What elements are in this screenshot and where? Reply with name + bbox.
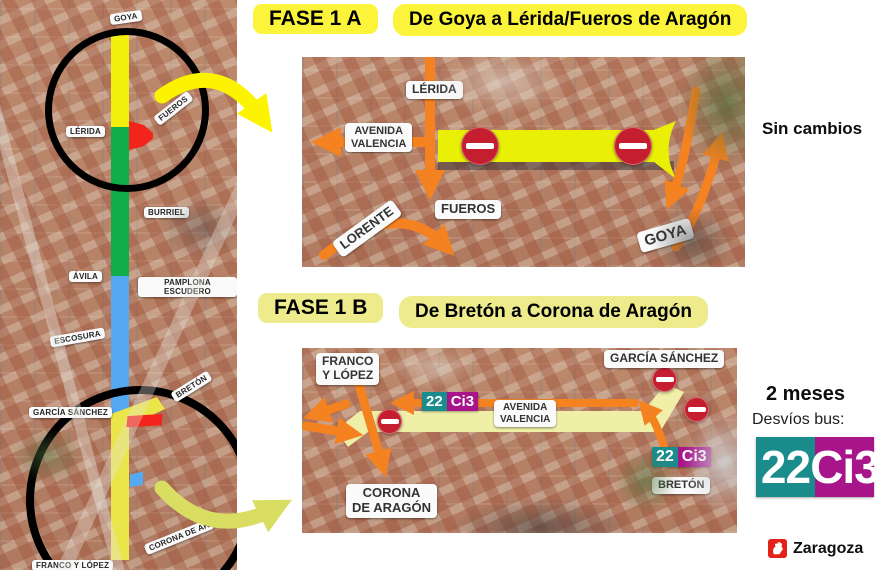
zaragoza-lion-icon	[768, 539, 787, 558]
no-entry-icon	[614, 127, 652, 165]
no-entry-icon	[652, 367, 677, 392]
phase-b-duration: 2 meses	[766, 383, 845, 406]
no-entry-icon	[461, 127, 499, 165]
street-label-avila: ÁVILA	[69, 271, 102, 282]
phase-a-note: Sin cambios	[762, 119, 862, 139]
map-label-lerida: LÉRIDA	[406, 81, 463, 99]
bus-line-ci3: Ci3	[815, 437, 874, 497]
city-name: Zaragoza	[793, 540, 863, 558]
map-label-garcia-sanchez: GARCÍA SÁNCHEZ	[604, 350, 724, 368]
map-label-breton: BRETÓN	[652, 477, 710, 494]
street-label-garcia-sanchez: GARCÍA SÁNCHEZ	[29, 407, 112, 418]
phase-b-badge: FASE 1 B	[258, 293, 383, 323]
detour-arrow-breton-curve	[646, 409, 668, 460]
map-label-goya: GOYA	[636, 218, 695, 254]
city-logo: Zaragoza	[768, 539, 863, 558]
map-label-avenida-valencia: AVENIDA VALENCIA	[494, 400, 556, 427]
phase-b-map: 22 Ci3 22 Ci3 FRANCO Y LÓPEZ GARCÍA SÁNC…	[302, 348, 737, 533]
overview-red-wedge	[126, 410, 163, 431]
works-road-band	[336, 411, 654, 447]
detour-arrow-right-in	[306, 426, 350, 433]
detour-arrow-goya-down	[672, 91, 696, 197]
bus-lines-badge: 22 Ci3	[652, 447, 711, 467]
phase-b-bus-note: Desvíos bus:	[752, 411, 844, 429]
phase-a-road-overlay	[302, 57, 745, 267]
street-label-lerida: LÉRIDA	[66, 126, 105, 137]
phase-a-map: LÉRIDA AVENIDA VALENCIA FUEROS LORENTE G…	[302, 57, 745, 267]
phase-b-road-overlay	[302, 348, 737, 533]
no-entry-icon	[377, 409, 402, 434]
detour-arrow-left-out	[316, 404, 346, 414]
detour-arrow-goya-up	[676, 145, 719, 247]
street-label-burriel: BURRIEL	[144, 207, 189, 218]
closed-road-band	[438, 121, 676, 179]
street-label-goya: GOYA	[109, 10, 142, 25]
map-label-avenida-valencia: AVENIDA VALENCIA	[345, 123, 412, 152]
overview-segment-blue	[111, 276, 129, 413]
detour-arrow-franco-down	[358, 382, 382, 464]
zoom-arrow-top-icon	[150, 56, 300, 148]
street-label-breton: BRETÓN	[170, 370, 212, 402]
infographic-canvas: GOYA LÉRIDA FUEROS BURRIEL ÁVILA PAMPLON…	[0, 0, 880, 570]
map-label-lorente: LORENTE	[332, 199, 403, 258]
works-road-band-diagonal	[643, 384, 684, 432]
bus-line-22: 22	[756, 437, 815, 497]
no-entry-icon	[684, 397, 709, 422]
overview-blue-patch	[130, 472, 143, 488]
bus-line-22: 22	[652, 447, 678, 467]
map-label-fueros: FUEROS	[435, 200, 501, 219]
map-label-corona-aragon: CORONA DE ARAGÓN	[346, 484, 437, 518]
map-label-franco-lopez: FRANCO Y LÓPEZ	[316, 353, 379, 385]
street-label-pamplona-escudero: PAMPLONA ESCUDERO	[138, 277, 237, 297]
street-label-escosura: ESCOSURA	[49, 327, 105, 348]
phase-a-title: De Goya a Lérida/Fueros de Aragón	[393, 4, 747, 36]
bus-line-ci3: Ci3	[447, 392, 478, 411]
bus-line-22: 22	[422, 392, 447, 411]
road-shadow	[438, 161, 674, 170]
bus-lines-badge: 22 Ci3	[422, 392, 478, 411]
bus-line-ci3: Ci3	[678, 447, 711, 467]
phase-a-badge: FASE 1 A	[253, 4, 378, 34]
detour-arrow-lorente	[324, 223, 444, 255]
street-label-franco-lopez: FRANCO Y LÓPEZ	[32, 560, 113, 570]
phase-b-title: De Bretón a Corona de Aragón	[399, 296, 708, 328]
zoom-arrow-bottom-icon	[152, 438, 307, 538]
overview-segment-green	[111, 127, 129, 276]
bus-lines-badge-large: 22 Ci3	[756, 437, 874, 497]
overview-segment-yellow	[111, 30, 129, 127]
